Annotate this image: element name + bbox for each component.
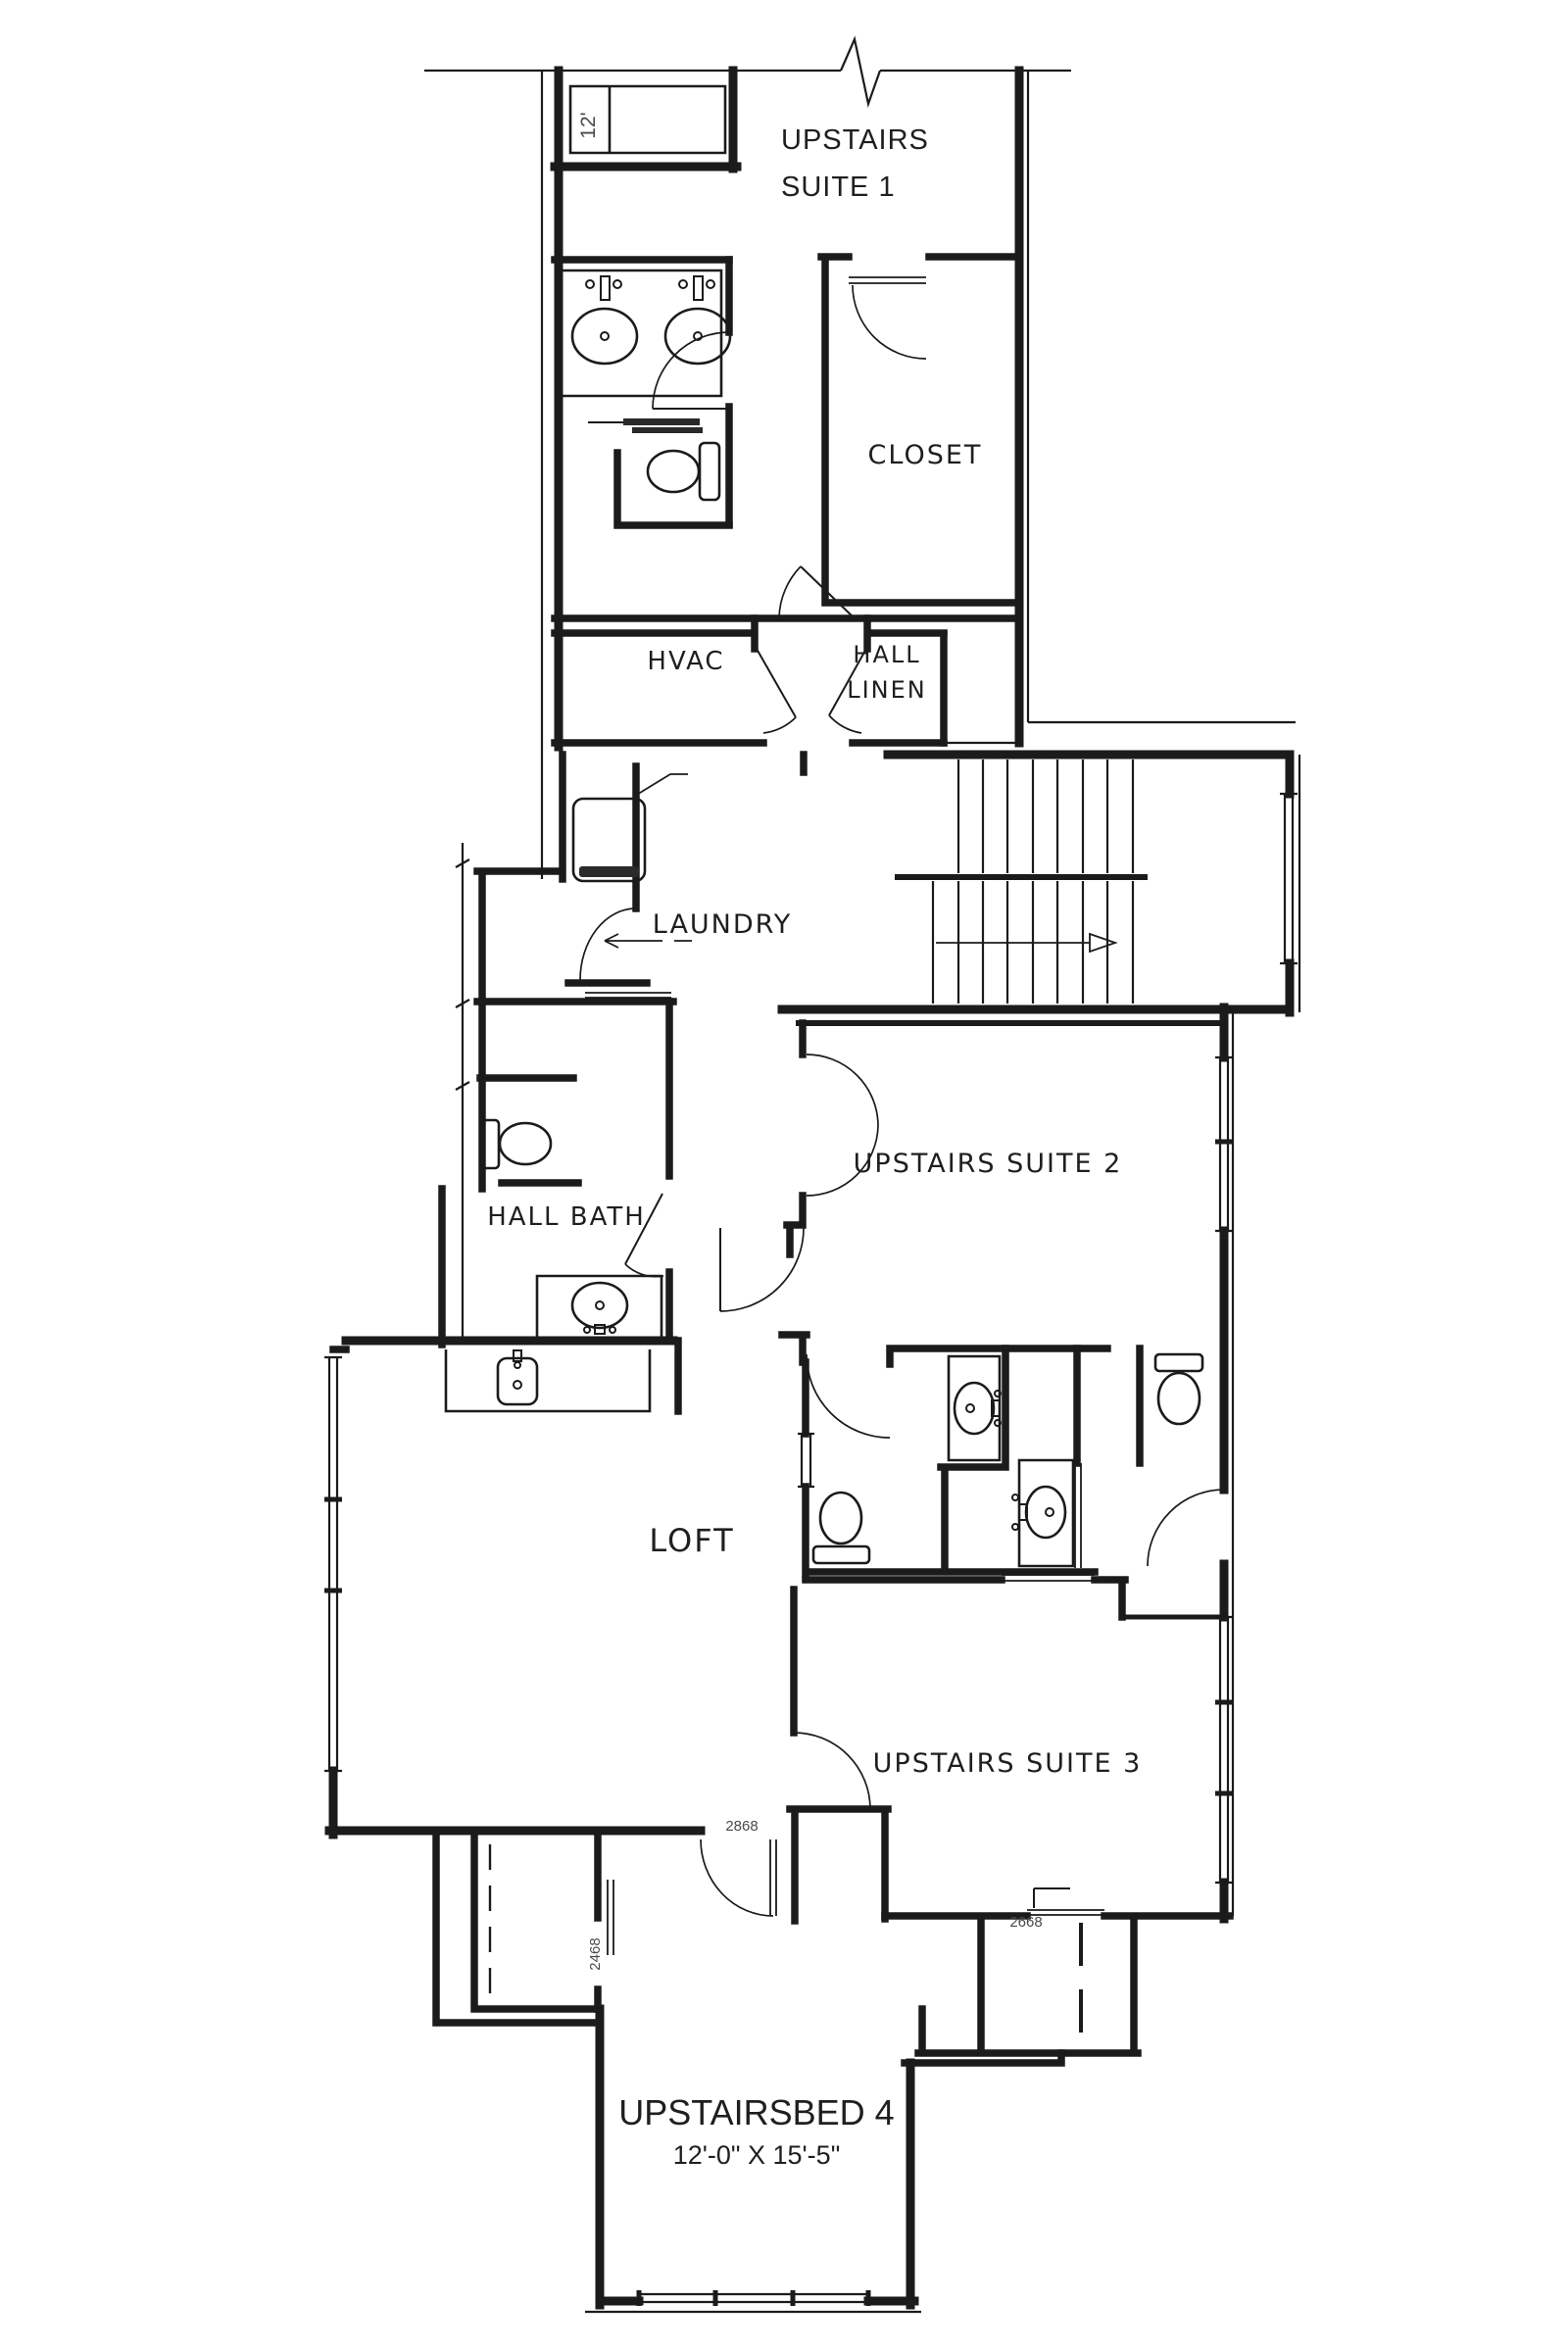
hall-bath-label: HALL BATH [487,1202,646,1232]
hall-linen-label: HALL [853,641,920,668]
stair-window-icon [1280,794,1298,963]
suite3-window-icon [1215,1617,1233,1883]
staircase [898,759,1145,1004]
bath2-vanity-icon [1012,1460,1073,1566]
bath1-toilet-icon [813,1493,869,1563]
hall-bath-sink-icon [537,1276,661,1339]
bath1-door [807,1354,890,1438]
door-label-2868: 2868 [725,1818,758,1835]
loft-counter-sink-icon [446,1349,650,1411]
suite3-bath-door [1148,1490,1224,1566]
suite1-label: UPSTAIRS [781,124,929,156]
loft-label: LOFT [649,1522,734,1559]
laundry-label: LAUNDRY [653,909,792,940]
suite1-label-2: SUITE 1 [781,171,896,203]
closet-label: CLOSET [868,440,983,470]
bed4-dim-label: 12'-0" X 15'-5" [673,2140,841,2170]
door-label-2668: 2668 [1009,1914,1042,1931]
shower-dim-label: 12' [577,112,600,138]
suite2-label: UPSTAIRS SUITE 2 [854,1149,1123,1179]
suite1-closet-door [849,277,926,283]
bed4-label: UPSTAIRSBED 4 [618,2092,894,2132]
hall-linen-label-2: LINEN [847,676,927,704]
loft-window-icon [324,1357,342,1771]
labels: UPSTAIRS SUITE 1 CLOSET HVAC HALL LINEN … [487,112,1142,2170]
hall-bath-toilet-icon [482,1120,551,1168]
suite2-double-door [807,1054,878,1126]
suite3-label: UPSTAIRS SUITE 3 [873,1748,1143,1779]
towel-bar-icon [623,418,700,425]
hvac-door [757,649,796,717]
floorplan-canvas: UPSTAIRS SUITE 1 CLOSET HVAC HALL LINEN … [0,0,1568,2352]
break-symbol [841,39,880,104]
bed4-hall-door [770,1839,776,1916]
double-vanity-icon [556,270,730,396]
laundry-door [580,908,636,980]
bath2-toilet-icon [1155,1354,1202,1424]
suite3-door [794,1733,870,1809]
suite2-window-icon [1215,1057,1233,1231]
water-heater-icon [573,774,688,881]
door-label-2468: 2468 [587,1937,604,1970]
suite1-toilet-icon [648,443,719,500]
bath-window-icon [798,1434,814,1487]
bath1-vanity-icon [949,1356,1001,1460]
hvac-label: HVAC [647,647,724,676]
floorplan-page: UPSTAIRS SUITE 1 CLOSET HVAC HALL LINEN … [0,0,1568,2352]
